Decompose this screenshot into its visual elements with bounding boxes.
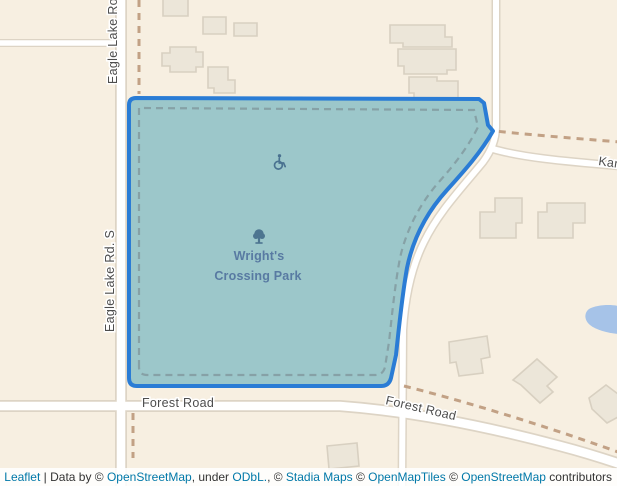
attribution-text: , under [192,470,233,484]
openstreetmap-contributors-link[interactable]: OpenStreetMap [461,470,546,484]
road-label-forest-west: Forest Road [142,396,214,410]
building [390,25,452,47]
park-label-line2: Crossing Park [214,269,301,283]
attribution-bar: Leaflet | Data by © OpenStreetMap, under… [0,468,617,486]
leaflet-link[interactable]: Leaflet [4,470,40,484]
attribution-text: , © [267,470,286,484]
openmaptiles-link[interactable]: OpenMapTiles [368,470,446,484]
building [203,17,226,34]
stadia-maps-link[interactable]: Stadia Maps [286,470,353,484]
road-label-eagle-lake-top: Eagle Lake Ro [106,0,120,84]
attribution-text: contributors [546,470,612,484]
attribution-text: | Data by © [40,470,107,484]
building [234,23,257,36]
map-viewport[interactable]: Eagle Lake Ro Eagle Lake Rd. S Forest Ro… [0,0,617,486]
odbl-link[interactable]: ODbL. [232,470,267,484]
building [398,49,456,74]
attribution-text: © [446,470,462,484]
map-svg[interactable]: Eagle Lake Ro Eagle Lake Rd. S Forest Ro… [0,0,617,486]
attribution-text: © [353,470,369,484]
road-label-eagle-lake-s: Eagle Lake Rd. S [103,230,117,332]
building [327,443,359,469]
openstreetmap-link[interactable]: OpenStreetMap [107,470,192,484]
park-label-line1: Wright's [234,249,285,263]
building [163,0,188,16]
